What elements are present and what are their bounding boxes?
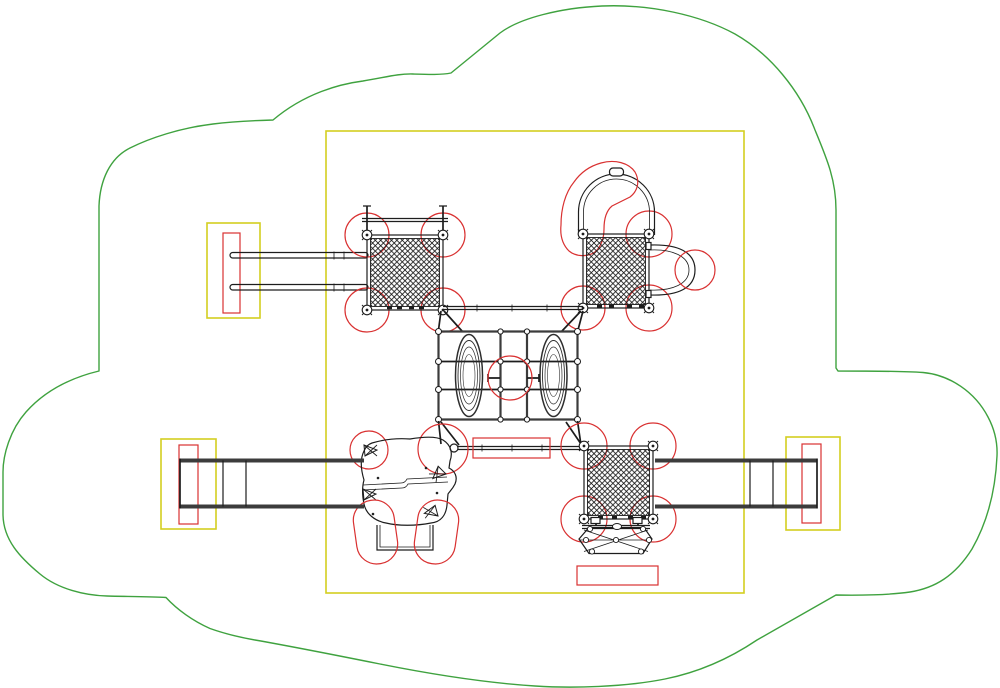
slide-rails (180, 461, 364, 507)
foothold-mark (363, 489, 376, 500)
foothold-mark (429, 466, 446, 483)
wide-slide-left (180, 459, 364, 509)
boulder-climber (350, 431, 461, 567)
slide-exit-zone-upper-left (207, 223, 260, 318)
overhead-bar (362, 219, 448, 222)
deck-edge-dashes (597, 305, 644, 308)
ring-left (456, 335, 483, 417)
playground-plan-sheet (0, 0, 1000, 688)
side-rails (439, 330, 578, 421)
slide-rails (655, 461, 817, 507)
foothold-mark (364, 445, 377, 456)
wide-slide-right (655, 459, 817, 509)
overhead-arch-outer (579, 174, 655, 235)
twin-rail-slide-upper-left (230, 252, 368, 292)
rail-fittings (436, 329, 581, 423)
zigzag-climber (577, 518, 658, 586)
ring-right (540, 335, 567, 417)
side-loop-climber (646, 243, 715, 298)
end-rails (438, 332, 579, 420)
slide-section-joints (750, 461, 773, 507)
post-safety-circle (350, 431, 388, 469)
overhead-ring-climber (436, 329, 582, 446)
overhead-arch-inner (584, 179, 650, 235)
boulder-dots (372, 467, 439, 516)
lower-connecting-beam (418, 424, 584, 474)
deck-mesh (588, 450, 650, 516)
overhead-post (367, 206, 443, 235)
foothold-mark (423, 505, 438, 518)
rungs (440, 362, 577, 390)
center-rails (501, 332, 528, 420)
fall-zone-capsule-right (412, 497, 462, 566)
deck-mesh (371, 239, 440, 307)
deck-mesh (587, 238, 646, 305)
slide-section-joints (223, 461, 246, 507)
playground-plan-canvas[interactable] (0, 0, 1000, 688)
slide-exit-zone-lower-right (786, 437, 840, 530)
slide-exit-zone-lower-left (161, 439, 216, 529)
beam-clearance-box (473, 438, 550, 458)
base-frame-outer (377, 525, 433, 550)
arch-apex-fitting (610, 168, 624, 176)
play-deck-upper-right (561, 161, 715, 331)
base-frame-inner (380, 525, 430, 547)
clearance-box (577, 566, 658, 585)
lower-braces (439, 421, 582, 445)
